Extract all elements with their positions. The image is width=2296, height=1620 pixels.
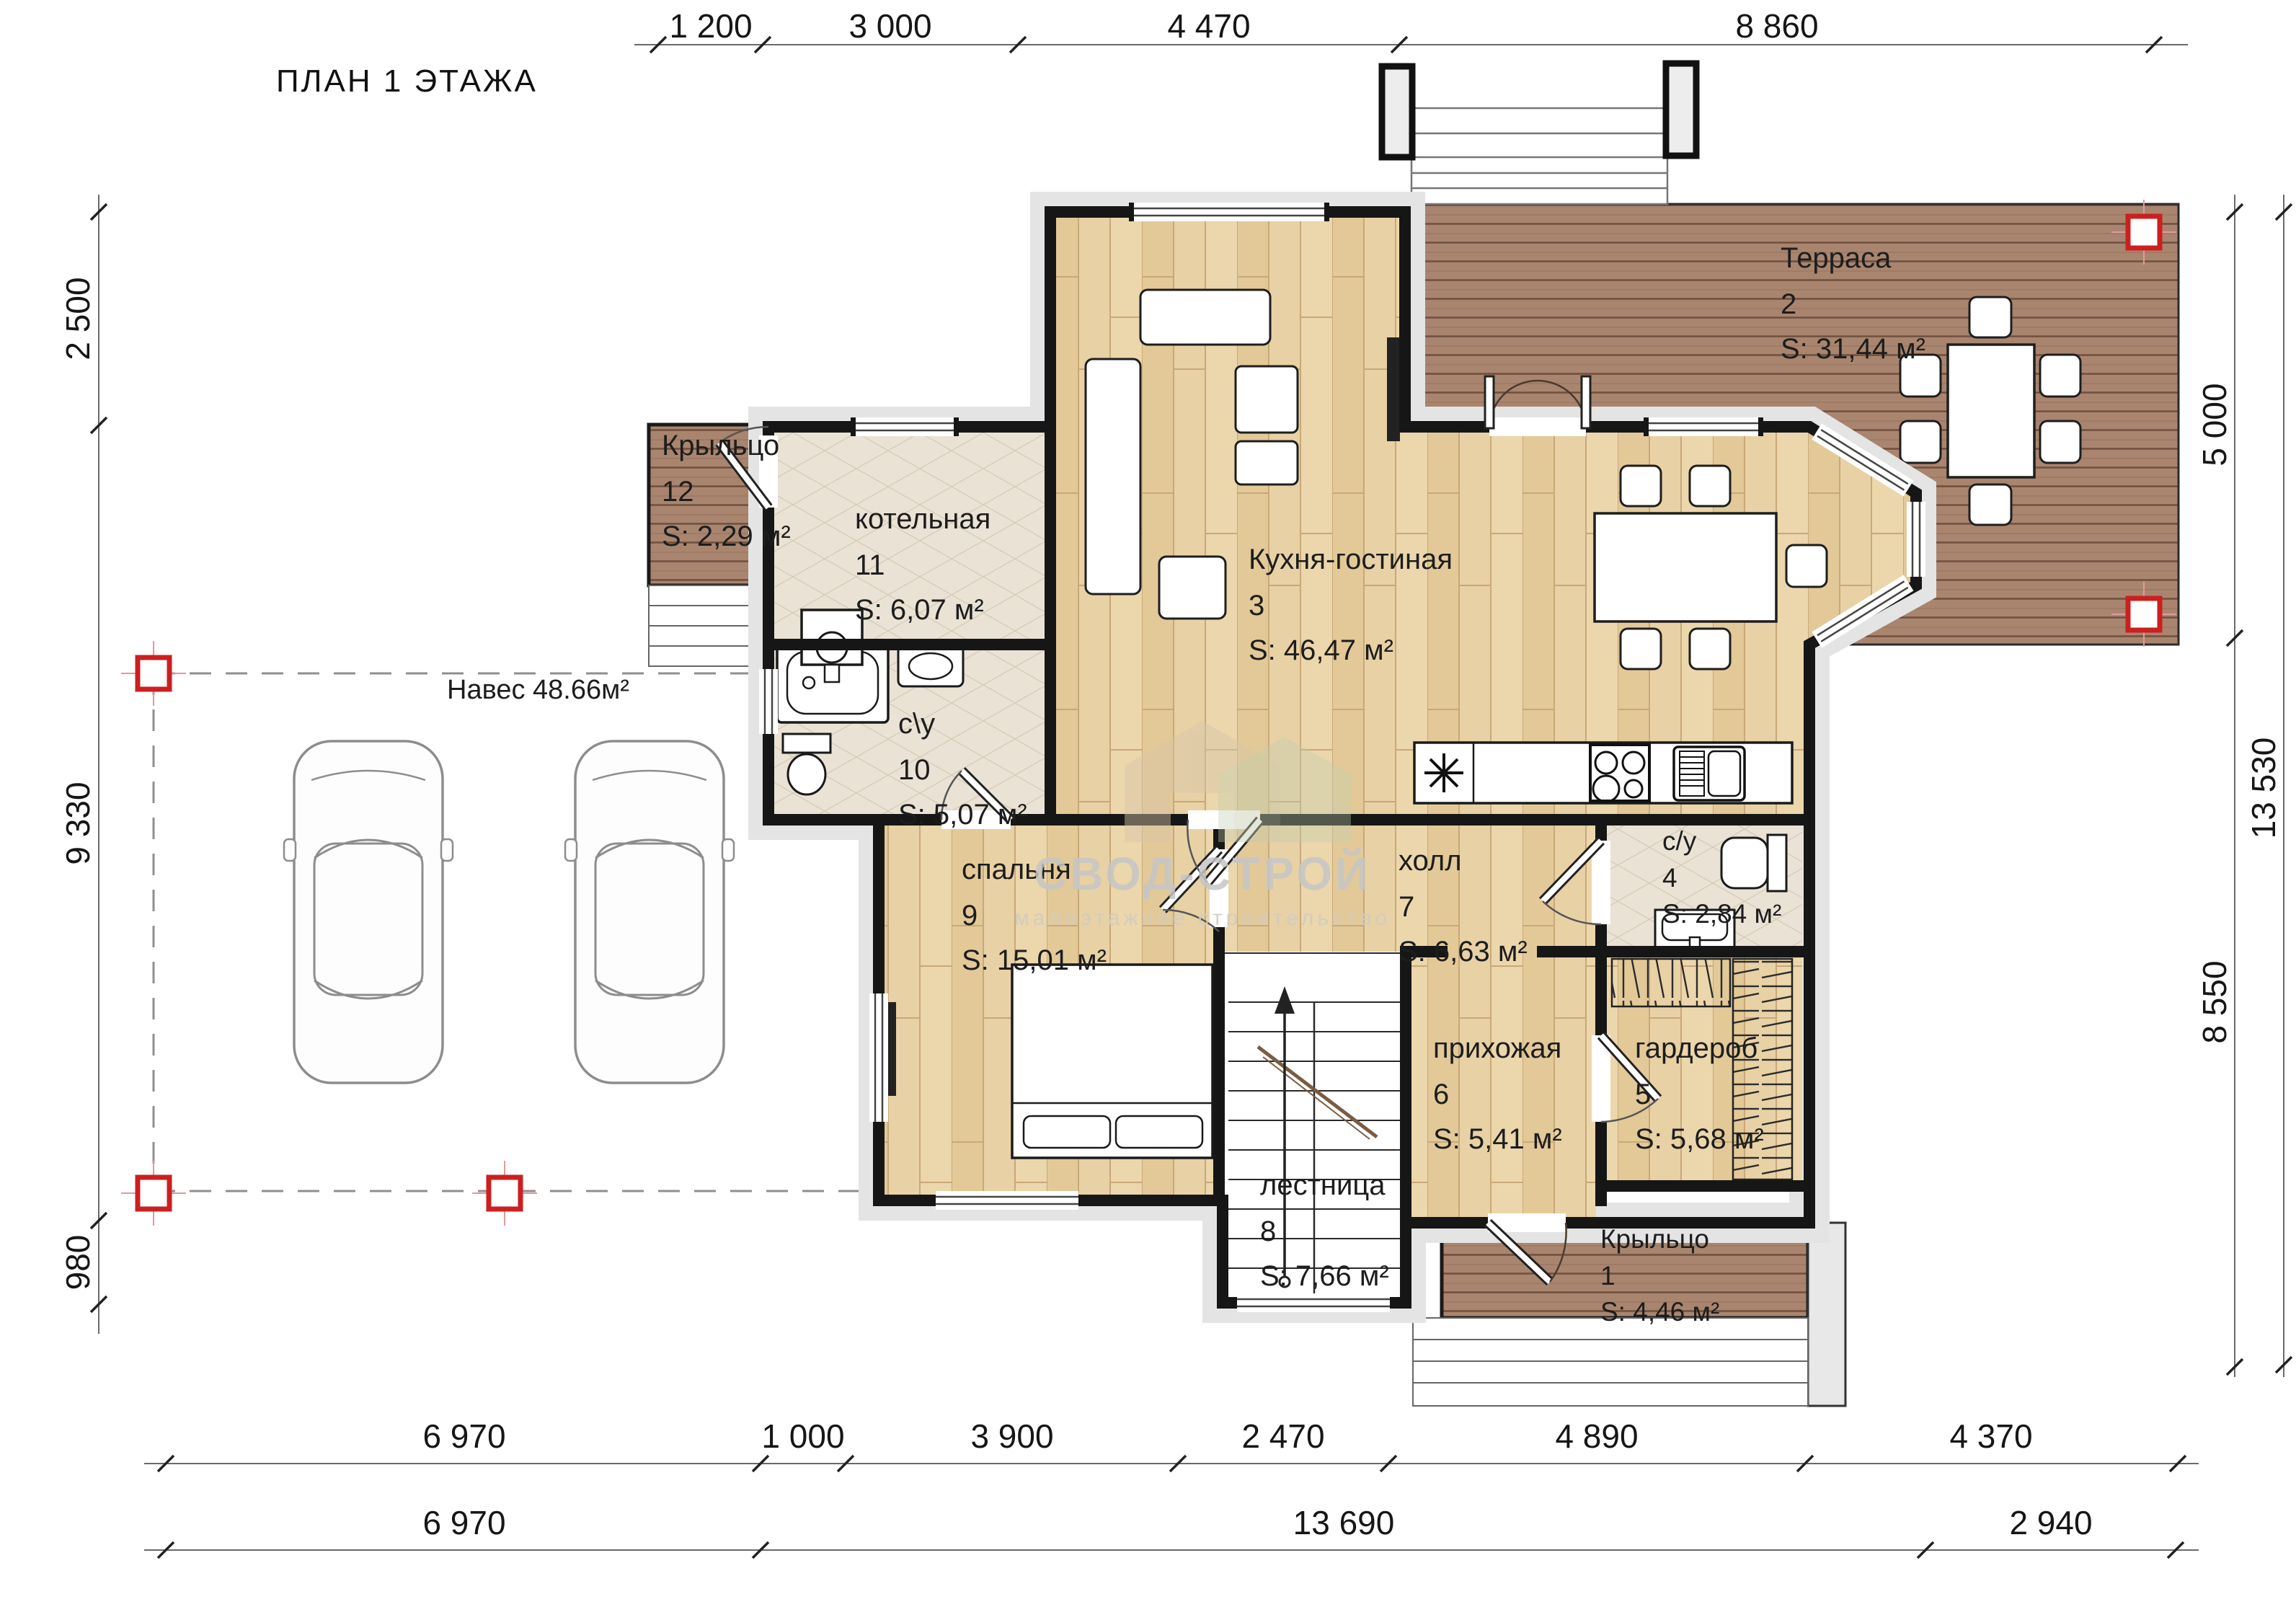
window-bedroom-bottom [936, 1191, 1078, 1210]
terrace-steps-top [1382, 63, 1696, 204]
bath10-toilet [783, 734, 830, 794]
kitchen-counter [1414, 743, 1792, 803]
window-living-top [1129, 203, 1329, 221]
car-1 [284, 741, 453, 1083]
bath4-sink [1655, 910, 1734, 950]
kitchen-sink-unit [1674, 747, 1745, 800]
bath4-toilet [1721, 835, 1786, 891]
floor-plan-canvas [0, 0, 2296, 1620]
tv-living [1387, 337, 1400, 441]
window-bay-east [1907, 502, 1925, 577]
window-bath10-left [759, 669, 778, 734]
window-stairs-bottom [1237, 1293, 1390, 1312]
porch-1 [1413, 1223, 1845, 1406]
floor-entry [1406, 952, 1596, 1223]
window-bedroom-left [869, 993, 888, 1122]
window-kitchen-top [1644, 417, 1763, 436]
terrace-pillar-right [1666, 63, 1696, 156]
sink-symbol [1424, 753, 1463, 792]
terrace-pillar-left [1382, 66, 1412, 157]
window-boiler-top [851, 417, 959, 436]
floor-plan-page: ПЛАН 1 ЭТАЖА Терраса 2 S: 31,44 м² Крыль… [0, 0, 2296, 1620]
car-2 [565, 741, 734, 1083]
